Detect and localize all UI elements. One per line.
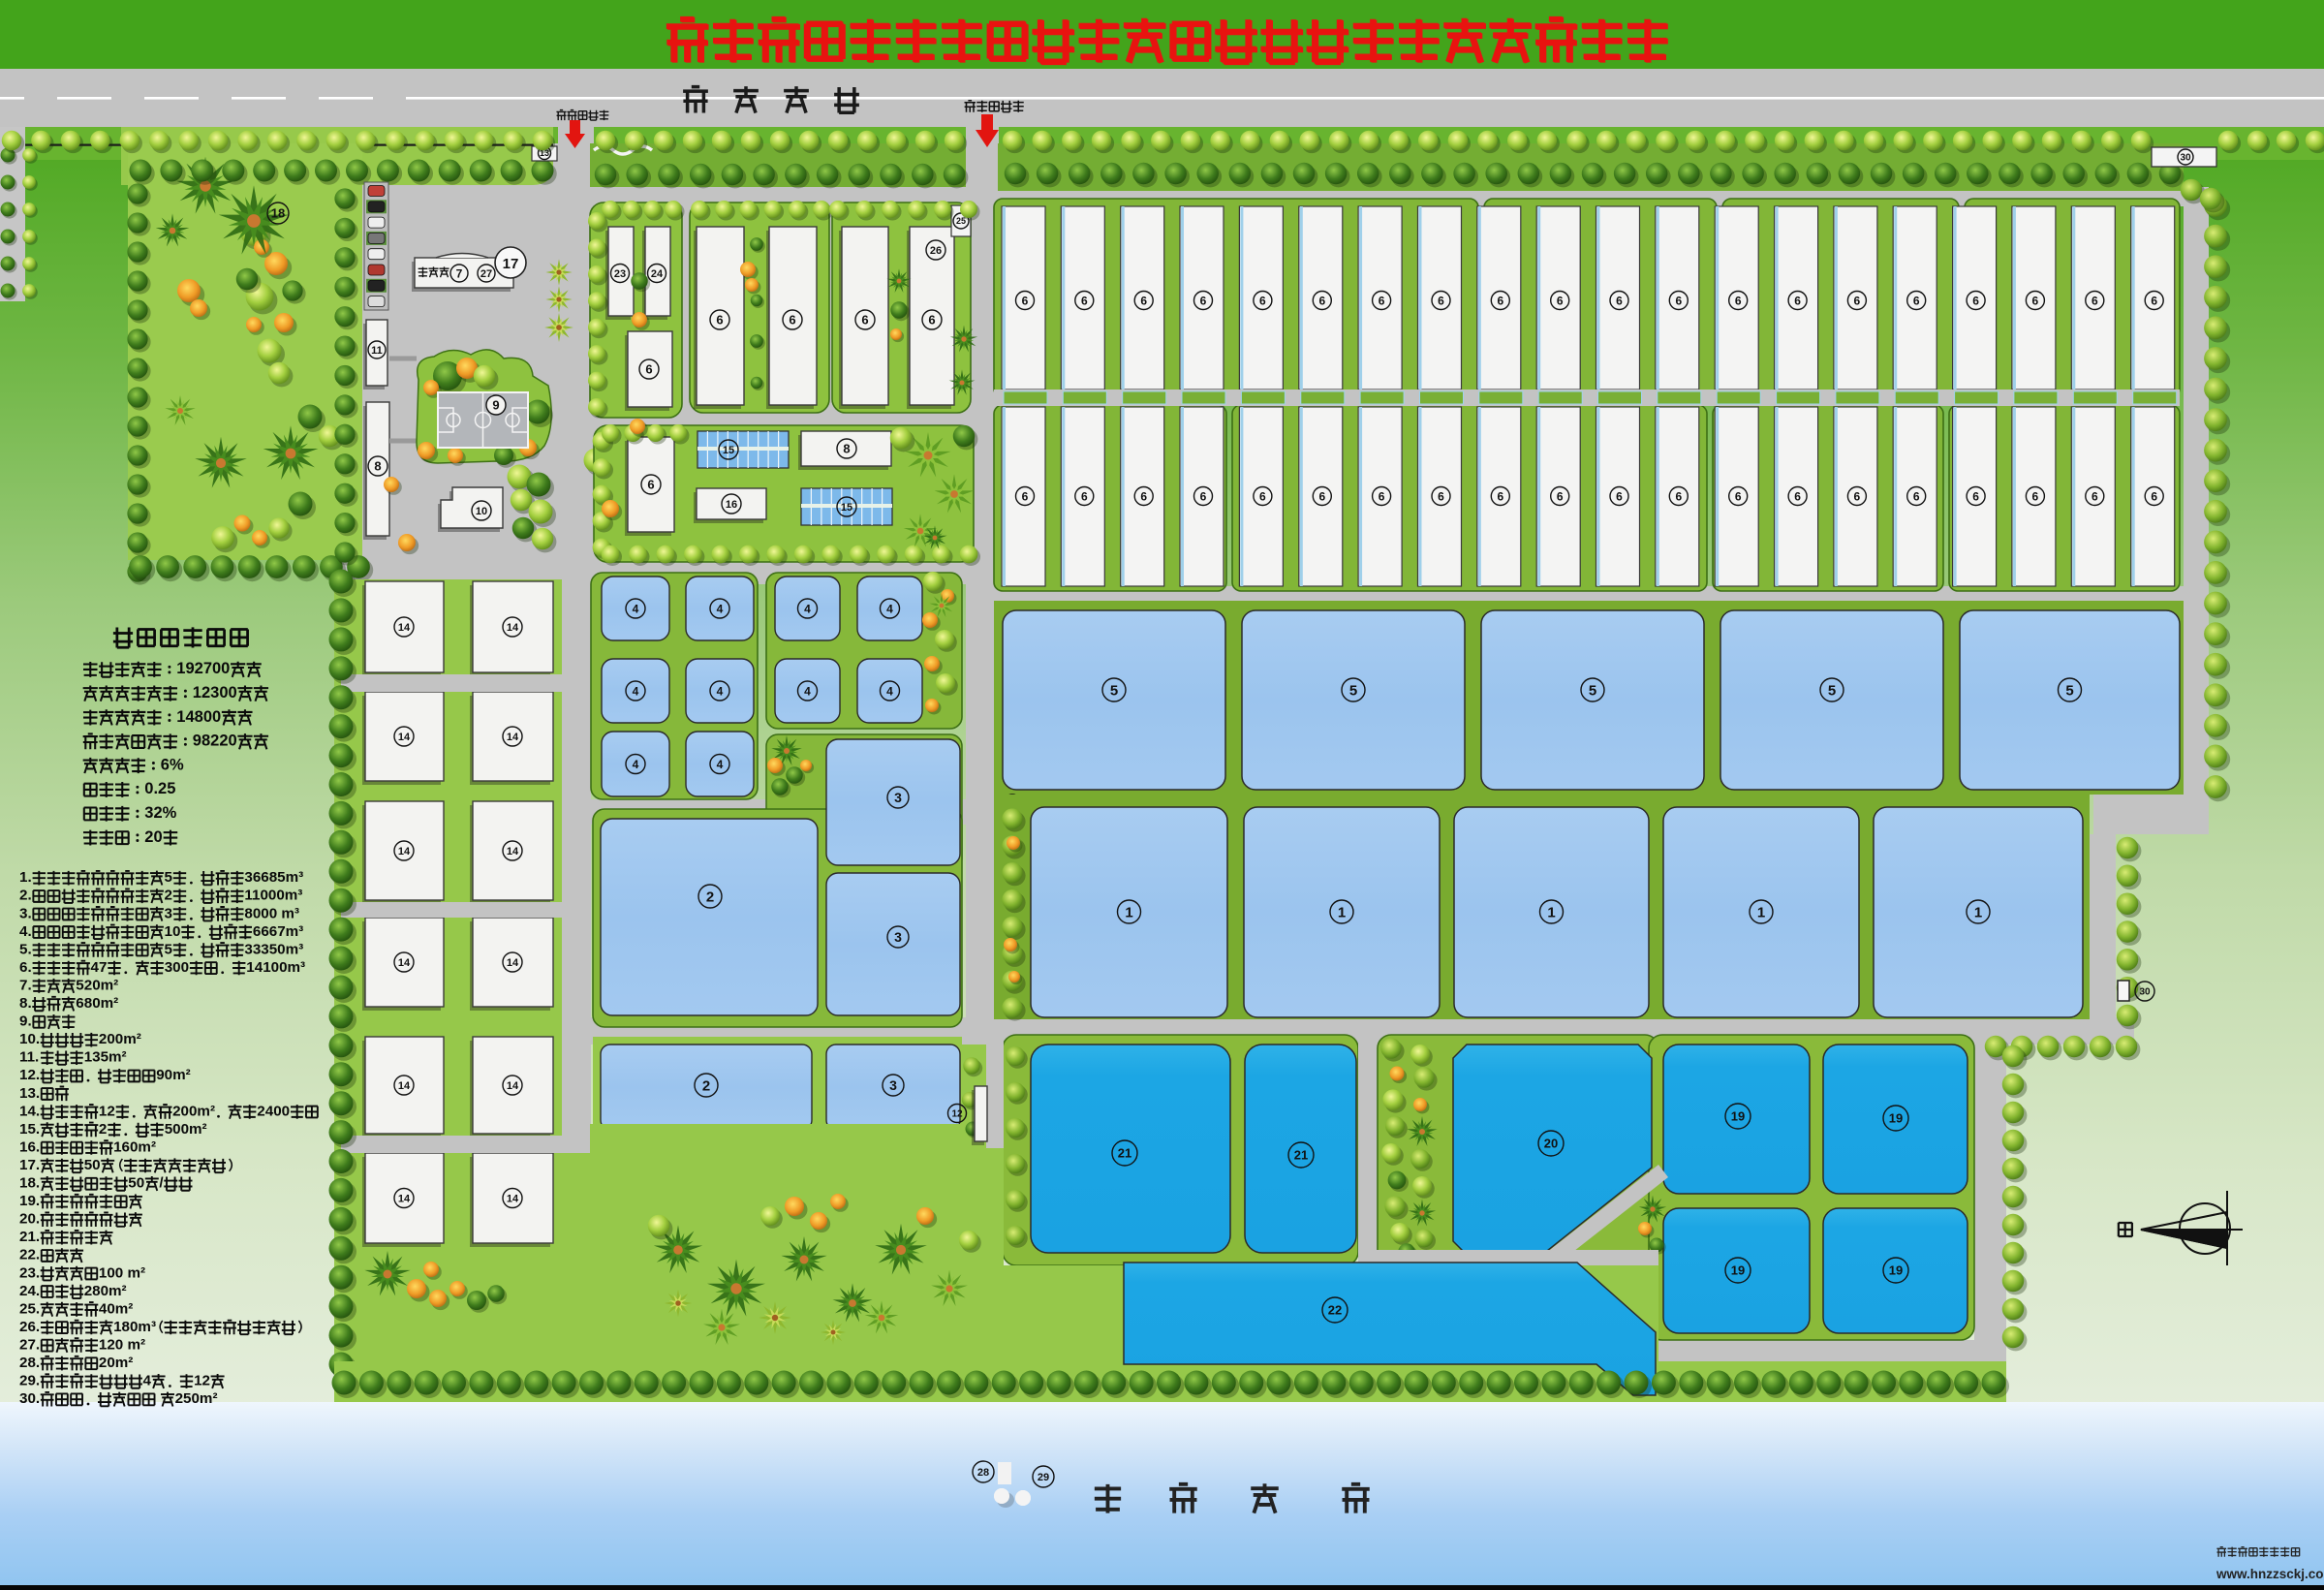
svg-text:4: 4 xyxy=(717,684,724,698)
svg-text:28.: 28. xyxy=(19,1355,40,1371)
svg-text:6: 6 xyxy=(928,313,935,327)
svg-text:5: 5 xyxy=(1828,682,1836,699)
svg-text:2: 2 xyxy=(165,888,172,904)
svg-text:22.: 22. xyxy=(19,1247,40,1263)
svg-text:19.: 19. xyxy=(19,1193,40,1209)
svg-text:0.25: 0.25 xyxy=(144,780,175,797)
svg-text:5: 5 xyxy=(165,869,173,886)
svg-text:20m²: 20m² xyxy=(99,1355,133,1371)
svg-text:19: 19 xyxy=(1731,1263,1745,1278)
svg-text:30.: 30. xyxy=(19,1390,40,1407)
svg-text:26: 26 xyxy=(930,245,942,257)
svg-text:98220: 98220 xyxy=(193,733,237,750)
svg-text:6: 6 xyxy=(1200,489,1207,503)
svg-text:1: 1 xyxy=(1547,904,1555,920)
svg-text:6: 6 xyxy=(2151,489,2157,503)
svg-text:29.: 29. xyxy=(19,1373,40,1389)
svg-text:14: 14 xyxy=(507,957,519,969)
svg-text:14: 14 xyxy=(398,846,411,857)
svg-text:6: 6 xyxy=(1497,294,1503,307)
svg-text:9: 9 xyxy=(492,398,499,413)
svg-text:6: 6 xyxy=(2032,489,2039,503)
svg-text:1.: 1. xyxy=(19,869,32,886)
svg-text:6: 6 xyxy=(1972,489,1979,503)
svg-text:6: 6 xyxy=(647,478,654,492)
svg-text:4: 4 xyxy=(886,602,893,615)
svg-text:180m³: 180m³ xyxy=(113,1319,156,1335)
svg-text:6: 6 xyxy=(1379,489,1385,503)
svg-text:10: 10 xyxy=(165,923,181,940)
svg-text:12.: 12. xyxy=(19,1067,40,1083)
svg-text:14: 14 xyxy=(507,732,519,743)
svg-text:14: 14 xyxy=(398,622,411,634)
svg-text:4: 4 xyxy=(633,758,639,771)
svg-text:6: 6 xyxy=(1972,294,1979,307)
svg-text:5: 5 xyxy=(2065,682,2073,699)
svg-text:32%: 32% xyxy=(144,804,176,822)
svg-text:12300: 12300 xyxy=(193,684,237,701)
svg-text:1: 1 xyxy=(1974,904,1982,920)
svg-text:6: 6 xyxy=(1854,489,1861,503)
svg-text:30: 30 xyxy=(2180,153,2191,164)
svg-text:18.: 18. xyxy=(19,1175,40,1192)
svg-text:14800: 14800 xyxy=(176,708,221,726)
svg-text:2: 2 xyxy=(702,1077,710,1094)
svg-text:21.: 21. xyxy=(19,1229,40,1245)
svg-text:20.: 20. xyxy=(19,1211,40,1228)
svg-text:8: 8 xyxy=(843,442,850,456)
svg-text:33350m³: 33350m³ xyxy=(244,941,303,957)
svg-text:120 m²: 120 m² xyxy=(99,1337,145,1354)
svg-text:6: 6 xyxy=(1616,489,1623,503)
svg-text:15: 15 xyxy=(841,502,852,514)
svg-text:520m²: 520m² xyxy=(76,978,118,994)
svg-text:6: 6 xyxy=(1438,489,1444,503)
svg-text:6: 6 xyxy=(1735,294,1742,307)
svg-text:14: 14 xyxy=(398,732,411,743)
svg-text:www.hnzzsckj.com: www.hnzzsckj.com xyxy=(2216,1567,2324,1581)
svg-text:6: 6 xyxy=(716,313,723,327)
svg-text:6: 6 xyxy=(1259,294,1266,307)
svg-text:30: 30 xyxy=(2139,987,2151,998)
svg-text:19: 19 xyxy=(1731,1109,1745,1124)
svg-text:6: 6 xyxy=(1140,294,1147,307)
svg-text:14: 14 xyxy=(507,1080,519,1092)
svg-text:1: 1 xyxy=(1338,904,1346,920)
svg-text:1: 1 xyxy=(1125,904,1132,920)
svg-text:7: 7 xyxy=(456,266,463,280)
svg-text:14: 14 xyxy=(398,957,411,969)
svg-text:6: 6 xyxy=(1854,294,1861,307)
svg-text:28: 28 xyxy=(977,1467,989,1479)
svg-text:5: 5 xyxy=(1589,682,1596,699)
svg-text:3: 3 xyxy=(894,929,902,945)
svg-text:6: 6 xyxy=(1318,489,1325,503)
svg-text:6: 6 xyxy=(1140,489,1147,503)
svg-text:4.: 4. xyxy=(19,923,32,940)
svg-text:23.: 23. xyxy=(19,1264,40,1281)
svg-text:6: 6 xyxy=(1022,489,1029,503)
svg-text:14.: 14. xyxy=(19,1103,40,1119)
svg-text:6: 6 xyxy=(1379,294,1385,307)
svg-text:6: 6 xyxy=(1616,294,1623,307)
svg-text:21: 21 xyxy=(1118,1146,1131,1161)
svg-text:14100m³: 14100m³ xyxy=(246,959,305,976)
svg-text:16.: 16. xyxy=(19,1138,40,1155)
svg-text:16: 16 xyxy=(726,499,737,511)
svg-text:5: 5 xyxy=(1110,682,1118,699)
svg-text:4: 4 xyxy=(804,684,811,698)
svg-text:4: 4 xyxy=(143,1373,152,1389)
svg-text:6: 6 xyxy=(1913,489,1920,503)
svg-text:2.: 2. xyxy=(19,888,32,904)
svg-text:6: 6 xyxy=(1497,489,1503,503)
svg-text:192700: 192700 xyxy=(176,660,230,677)
svg-text:17: 17 xyxy=(503,256,519,272)
svg-text:6: 6 xyxy=(645,362,652,377)
svg-text:6: 6 xyxy=(1081,294,1088,307)
svg-text:90m²: 90m² xyxy=(156,1067,190,1083)
svg-text:3: 3 xyxy=(165,905,172,921)
svg-text:2400: 2400 xyxy=(257,1103,290,1119)
svg-text:27: 27 xyxy=(480,268,492,280)
svg-text:2: 2 xyxy=(706,889,714,905)
svg-text:6: 6 xyxy=(2151,294,2157,307)
svg-text:11: 11 xyxy=(371,345,383,357)
svg-text:50: 50 xyxy=(128,1175,144,1192)
svg-text:6: 6 xyxy=(1557,294,1564,307)
svg-text:15: 15 xyxy=(723,445,734,456)
svg-text:135m²: 135m² xyxy=(84,1049,127,1066)
svg-text:19: 19 xyxy=(1889,1263,1903,1278)
svg-text:26.: 26. xyxy=(19,1319,40,1335)
svg-text:10.: 10. xyxy=(19,1031,40,1047)
svg-text:6: 6 xyxy=(789,313,795,327)
svg-text:6.: 6. xyxy=(19,959,32,976)
svg-text:14: 14 xyxy=(507,846,519,857)
svg-text:200m²: 200m² xyxy=(172,1103,215,1119)
svg-text:4: 4 xyxy=(717,758,724,771)
svg-text:27.: 27. xyxy=(19,1337,40,1354)
svg-text:13.: 13. xyxy=(19,1085,40,1102)
svg-text:10: 10 xyxy=(476,506,487,517)
svg-text:8: 8 xyxy=(374,459,381,474)
svg-text:36685m³: 36685m³ xyxy=(244,869,303,886)
svg-text:4: 4 xyxy=(804,602,811,615)
svg-text:500m²: 500m² xyxy=(165,1121,207,1138)
svg-text:19: 19 xyxy=(1889,1111,1903,1126)
svg-text:250m²: 250m² xyxy=(175,1390,218,1407)
svg-text:200m²: 200m² xyxy=(99,1031,141,1047)
svg-text:3: 3 xyxy=(889,1077,897,1093)
svg-text:23: 23 xyxy=(614,268,626,280)
svg-text:12: 12 xyxy=(194,1373,210,1389)
svg-text:50: 50 xyxy=(84,1157,101,1173)
svg-text:25.: 25. xyxy=(19,1300,40,1317)
svg-text:47: 47 xyxy=(91,959,108,976)
svg-text:4: 4 xyxy=(633,602,639,615)
svg-text:6: 6 xyxy=(1022,294,1029,307)
svg-text:6: 6 xyxy=(2032,294,2039,307)
svg-text:6: 6 xyxy=(1438,294,1444,307)
svg-text:11000m³: 11000m³ xyxy=(244,888,302,904)
svg-text:20: 20 xyxy=(144,828,162,846)
svg-text:4: 4 xyxy=(633,684,639,698)
svg-text:29: 29 xyxy=(1038,1472,1049,1483)
svg-text:7.: 7. xyxy=(19,978,32,994)
svg-text:680m²: 680m² xyxy=(76,995,118,1012)
svg-text:6: 6 xyxy=(2092,294,2098,307)
svg-text:1: 1 xyxy=(1757,904,1765,920)
svg-text:8.: 8. xyxy=(19,995,32,1012)
svg-text:6: 6 xyxy=(861,313,868,327)
svg-text:22: 22 xyxy=(1328,1303,1342,1318)
svg-text:300: 300 xyxy=(165,959,189,976)
svg-text:6: 6 xyxy=(1913,294,1920,307)
svg-text:6: 6 xyxy=(1081,489,1088,503)
svg-text:2: 2 xyxy=(99,1121,107,1138)
svg-text:3: 3 xyxy=(894,790,902,805)
svg-text:4: 4 xyxy=(886,684,893,698)
svg-text:9.: 9. xyxy=(19,1013,32,1030)
svg-text:6: 6 xyxy=(1675,489,1682,503)
svg-text:8000 m³: 8000 m³ xyxy=(244,905,299,921)
svg-text:6: 6 xyxy=(1794,489,1801,503)
svg-text:17.: 17. xyxy=(19,1157,40,1173)
svg-text:160m²: 160m² xyxy=(113,1138,156,1155)
svg-text:40m²: 40m² xyxy=(99,1300,133,1317)
svg-text:6: 6 xyxy=(1557,489,1564,503)
svg-text:5: 5 xyxy=(165,941,173,957)
svg-text:6: 6 xyxy=(2092,489,2098,503)
svg-text:20: 20 xyxy=(1544,1137,1558,1151)
svg-text:5: 5 xyxy=(1349,682,1357,699)
svg-text:14: 14 xyxy=(398,1194,411,1205)
svg-text:6%: 6% xyxy=(161,756,184,773)
svg-text:6: 6 xyxy=(1735,489,1742,503)
svg-text:14: 14 xyxy=(507,1194,519,1205)
svg-text:18: 18 xyxy=(271,206,285,221)
svg-text:24.: 24. xyxy=(19,1283,40,1299)
svg-text:12: 12 xyxy=(99,1103,115,1119)
svg-text:15.: 15. xyxy=(19,1121,40,1138)
svg-text:280m²: 280m² xyxy=(84,1283,127,1299)
svg-text:6: 6 xyxy=(1259,489,1266,503)
svg-text:6667m³: 6667m³ xyxy=(253,923,303,940)
svg-text:4: 4 xyxy=(717,602,724,615)
svg-text:12: 12 xyxy=(951,1109,963,1120)
svg-text:11.: 11. xyxy=(19,1049,39,1066)
svg-text:21: 21 xyxy=(1294,1148,1308,1163)
svg-text:6: 6 xyxy=(1794,294,1801,307)
svg-text:100 m²: 100 m² xyxy=(99,1264,145,1281)
svg-text:24: 24 xyxy=(651,268,664,280)
svg-text:6: 6 xyxy=(1200,294,1207,307)
svg-text:14: 14 xyxy=(507,622,519,634)
svg-text:3.: 3. xyxy=(19,905,32,921)
svg-text:6: 6 xyxy=(1675,294,1682,307)
svg-text:5.: 5. xyxy=(19,941,32,957)
svg-text:14: 14 xyxy=(398,1080,411,1092)
svg-text:6: 6 xyxy=(1318,294,1325,307)
